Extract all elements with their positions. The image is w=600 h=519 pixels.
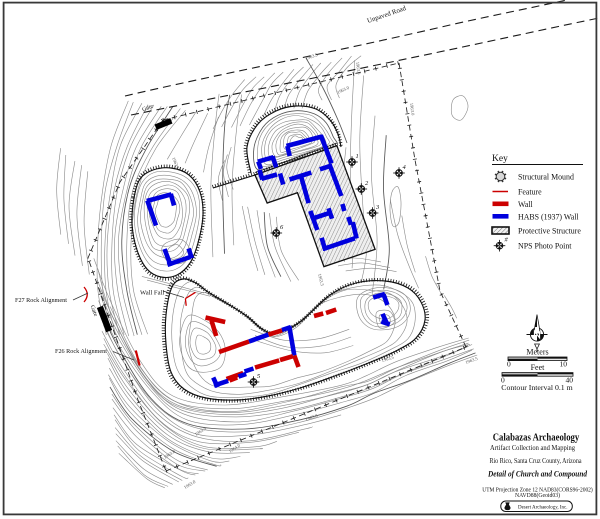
svg-text:1: 1 bbox=[356, 153, 359, 160]
svg-text:Protective Structure: Protective Structure bbox=[518, 227, 581, 236]
svg-text:Rio Rico, Santa Cruz County, A: Rio Rico, Santa Cruz County, Arizona bbox=[490, 456, 583, 465]
svg-text:Detail of Church and Compound: Detail of Church and Compound bbox=[487, 468, 587, 478]
svg-text:NAVD88(Geoid03): NAVD88(Geoid03) bbox=[515, 492, 560, 499]
svg-text:Wall: Wall bbox=[518, 200, 534, 209]
svg-text:Contour Interval 0.1 m: Contour Interval 0.1 m bbox=[501, 383, 572, 392]
svg-text:Structural Mound: Structural Mound bbox=[518, 173, 574, 182]
svg-text:HABS (1937) Wall: HABS (1937) Wall bbox=[518, 213, 579, 222]
svg-text:Key: Key bbox=[492, 154, 508, 164]
svg-text:Desert Archaeology, Inc.: Desert Archaeology, Inc. bbox=[518, 505, 568, 511]
svg-text:0: 0 bbox=[507, 360, 511, 369]
svg-text:Meters: Meters bbox=[526, 348, 548, 357]
svg-text:Wall Fall: Wall Fall bbox=[140, 290, 164, 297]
svg-text:Artifact Collection and Mappin: Artifact Collection and Mapping bbox=[490, 443, 575, 452]
svg-text:10: 10 bbox=[560, 360, 568, 369]
svg-text:Calabazas Archaeology: Calabazas Archaeology bbox=[493, 432, 580, 443]
svg-text:F27 Rock Alignment: F27 Rock Alignment bbox=[15, 297, 67, 304]
svg-text:Feature: Feature bbox=[518, 188, 542, 197]
svg-text:F26 Rock Alignment: F26 Rock Alignment bbox=[55, 348, 107, 355]
svg-text:NPS Photo Point: NPS Photo Point bbox=[518, 242, 572, 251]
svg-text:Feet: Feet bbox=[531, 363, 546, 372]
